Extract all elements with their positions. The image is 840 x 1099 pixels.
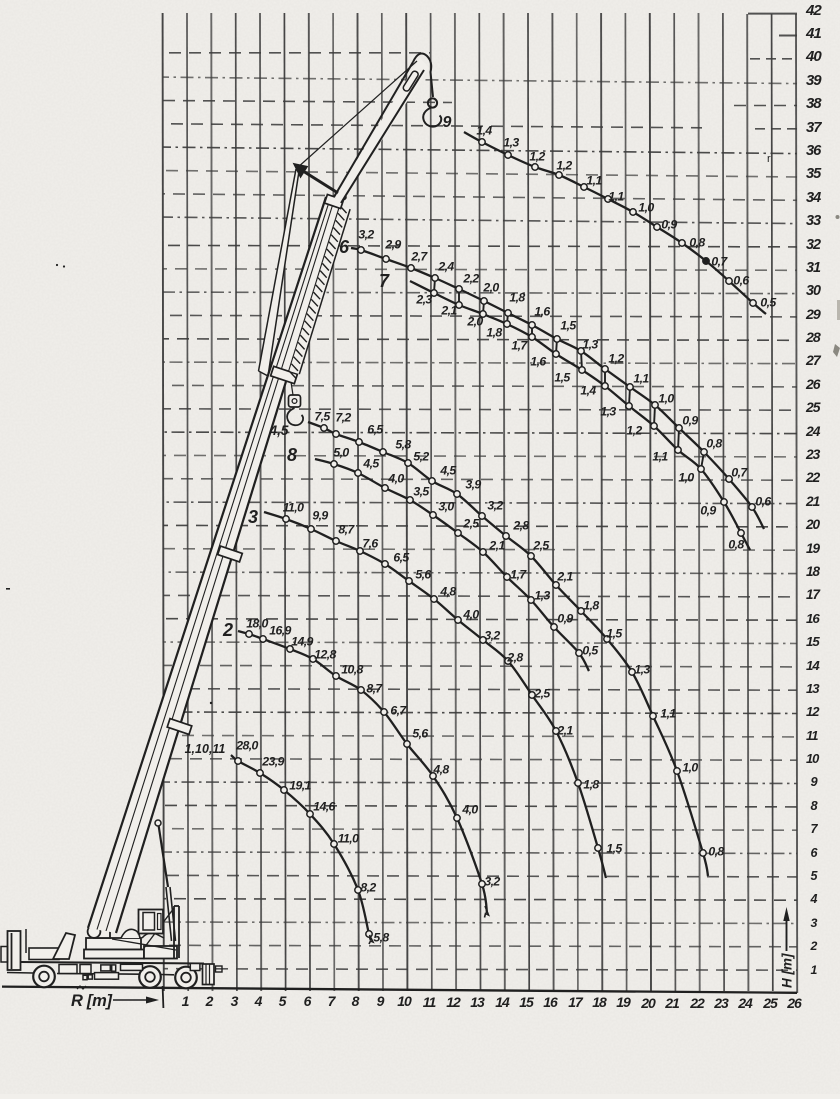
svg-text:14: 14 bbox=[495, 994, 510, 1010]
svg-text:17: 17 bbox=[806, 587, 820, 602]
svg-text:28,0: 28,0 bbox=[235, 739, 258, 753]
svg-text:1,3: 1,3 bbox=[582, 338, 598, 352]
svg-text:6,5: 6,5 bbox=[393, 551, 409, 565]
svg-text:5,6: 5,6 bbox=[412, 727, 428, 741]
svg-text:18: 18 bbox=[806, 564, 821, 579]
svg-text:1,5: 1,5 bbox=[554, 371, 570, 385]
svg-text:28: 28 bbox=[805, 330, 821, 346]
svg-text:H [m]: H [m] bbox=[780, 953, 795, 988]
svg-text:0,9: 0,9 bbox=[557, 612, 573, 626]
svg-text:0,7: 0,7 bbox=[711, 255, 728, 269]
svg-text:0,9: 0,9 bbox=[700, 504, 716, 518]
svg-text:4,5: 4,5 bbox=[362, 457, 379, 471]
svg-text:3: 3 bbox=[248, 507, 258, 527]
svg-text:7: 7 bbox=[379, 271, 390, 291]
svg-text:23,9: 23,9 bbox=[261, 755, 284, 769]
svg-text:0,6: 0,6 bbox=[755, 495, 771, 509]
svg-text:1,8: 1,8 bbox=[583, 599, 599, 613]
svg-text:2,3: 2,3 bbox=[415, 293, 432, 307]
svg-text:12: 12 bbox=[806, 704, 820, 719]
svg-text:11: 11 bbox=[423, 994, 437, 1010]
svg-text:0,6: 0,6 bbox=[733, 274, 749, 288]
svg-text:2,8: 2,8 bbox=[506, 651, 523, 665]
svg-text:1,3: 1,3 bbox=[600, 405, 616, 419]
svg-text:2,1: 2,1 bbox=[488, 539, 505, 553]
svg-text:27: 27 bbox=[805, 352, 822, 368]
svg-text:5,8: 5,8 bbox=[395, 438, 411, 452]
svg-text:5,6: 5,6 bbox=[415, 568, 431, 582]
svg-text:1,0: 1,0 bbox=[638, 201, 654, 215]
svg-text:2,1: 2,1 bbox=[556, 724, 573, 738]
svg-text:36: 36 bbox=[806, 143, 822, 159]
svg-text:2,4: 2,4 bbox=[437, 260, 454, 274]
svg-text:5: 5 bbox=[279, 993, 287, 1009]
svg-text:4,0: 4,0 bbox=[387, 472, 404, 486]
svg-text:8,2: 8,2 bbox=[360, 881, 376, 895]
svg-text:10,8: 10,8 bbox=[341, 663, 363, 677]
svg-text:13: 13 bbox=[806, 681, 820, 696]
svg-text:1,1: 1,1 bbox=[608, 190, 624, 204]
svg-text:1,5: 1,5 bbox=[560, 319, 576, 333]
svg-text:14,9: 14,9 bbox=[291, 635, 313, 649]
svg-text:12,8: 12,8 bbox=[314, 648, 336, 662]
svg-text:1,2: 1,2 bbox=[626, 424, 642, 438]
svg-text:1: 1 bbox=[182, 993, 190, 1009]
svg-text:1,2: 1,2 bbox=[556, 159, 572, 173]
svg-text:1,8: 1,8 bbox=[509, 291, 525, 305]
svg-text:5,8: 5,8 bbox=[373, 931, 389, 945]
svg-text:3,2: 3,2 bbox=[484, 629, 500, 643]
svg-text:10: 10 bbox=[806, 751, 820, 766]
svg-text:18,0: 18,0 bbox=[246, 617, 268, 631]
svg-text:2,9: 2,9 bbox=[384, 238, 401, 252]
svg-text:39: 39 bbox=[806, 73, 822, 89]
svg-text:2: 2 bbox=[810, 939, 818, 953]
svg-text:9,9: 9,9 bbox=[312, 509, 328, 523]
svg-text:2,1: 2,1 bbox=[440, 304, 457, 318]
svg-text:21: 21 bbox=[805, 494, 820, 509]
svg-text:8: 8 bbox=[287, 445, 297, 465]
svg-text:R [m]: R [m] bbox=[71, 992, 112, 1010]
svg-text:8: 8 bbox=[352, 993, 360, 1009]
svg-text:1,2: 1,2 bbox=[529, 150, 545, 164]
svg-text:3,9: 3,9 bbox=[465, 478, 481, 492]
svg-text:20: 20 bbox=[640, 995, 656, 1011]
svg-text:3,0: 3,0 bbox=[438, 500, 454, 514]
svg-text:0,5: 0,5 bbox=[582, 644, 598, 658]
svg-text:12: 12 bbox=[446, 994, 461, 1010]
svg-text:1,5: 1,5 bbox=[606, 627, 622, 641]
svg-text:6,5: 6,5 bbox=[367, 423, 383, 437]
svg-text:2,5: 2,5 bbox=[462, 517, 479, 531]
svg-text:6: 6 bbox=[304, 993, 312, 1009]
svg-text:34: 34 bbox=[806, 190, 821, 206]
svg-text:2,2: 2,2 bbox=[462, 272, 479, 286]
svg-text:0,8: 0,8 bbox=[728, 538, 744, 552]
svg-text:15: 15 bbox=[519, 994, 534, 1010]
svg-text:32: 32 bbox=[806, 237, 821, 253]
svg-text:5,0: 5,0 bbox=[333, 446, 349, 460]
svg-text:1,1: 1,1 bbox=[586, 174, 602, 188]
svg-text:1,1: 1,1 bbox=[660, 707, 676, 721]
svg-text:8,7: 8,7 bbox=[338, 523, 355, 537]
svg-text:35: 35 bbox=[806, 166, 822, 182]
svg-text:38: 38 bbox=[806, 96, 822, 112]
svg-text:26: 26 bbox=[786, 995, 802, 1011]
svg-text:3,2: 3,2 bbox=[358, 228, 374, 242]
svg-text:37: 37 bbox=[806, 120, 822, 136]
svg-text:29: 29 bbox=[805, 307, 821, 323]
svg-text:1,6: 1,6 bbox=[530, 355, 546, 369]
svg-text:3,5: 3,5 bbox=[413, 485, 429, 499]
svg-text:16: 16 bbox=[806, 611, 820, 626]
svg-text:30: 30 bbox=[806, 283, 821, 299]
svg-text:13: 13 bbox=[470, 994, 485, 1010]
svg-text:0,5: 0,5 bbox=[760, 296, 776, 310]
svg-text:1,7: 1,7 bbox=[511, 339, 528, 353]
svg-text:22: 22 bbox=[805, 470, 821, 485]
svg-text:1,3: 1,3 bbox=[634, 663, 650, 677]
svg-text:26: 26 bbox=[805, 376, 821, 392]
svg-text:1,6: 1,6 bbox=[534, 305, 550, 319]
svg-text:20: 20 bbox=[805, 517, 821, 532]
svg-text:19,1: 19,1 bbox=[289, 779, 311, 793]
svg-text:10: 10 bbox=[397, 993, 412, 1009]
svg-text:19: 19 bbox=[616, 994, 631, 1010]
svg-text:17: 17 bbox=[568, 994, 584, 1010]
svg-text:1,10,11: 1,10,11 bbox=[185, 742, 226, 756]
svg-text:18: 18 bbox=[592, 994, 607, 1010]
svg-text:19: 19 bbox=[806, 541, 821, 556]
svg-text:11: 11 bbox=[806, 728, 818, 743]
svg-text:15: 15 bbox=[806, 634, 820, 649]
svg-text:r: r bbox=[767, 153, 771, 165]
svg-text:25: 25 bbox=[762, 995, 778, 1011]
svg-text:1,5: 1,5 bbox=[606, 842, 622, 856]
svg-text:1,1: 1,1 bbox=[652, 450, 668, 464]
svg-text:22: 22 bbox=[689, 995, 705, 1011]
svg-text:1,0: 1,0 bbox=[682, 761, 698, 775]
svg-text:2: 2 bbox=[205, 993, 214, 1009]
svg-text:4,0: 4,0 bbox=[461, 803, 478, 817]
svg-text:14,6: 14,6 bbox=[313, 800, 335, 814]
svg-text:4,5: 4,5 bbox=[439, 464, 456, 478]
svg-text:3: 3 bbox=[231, 993, 239, 1009]
svg-text:24: 24 bbox=[737, 995, 753, 1011]
svg-text:1,3: 1,3 bbox=[534, 589, 550, 603]
svg-text:1,1: 1,1 bbox=[633, 372, 649, 386]
svg-text:0,8: 0,8 bbox=[708, 845, 724, 859]
svg-text:7,6: 7,6 bbox=[362, 537, 378, 551]
svg-text:0,8: 0,8 bbox=[706, 437, 722, 451]
svg-text:21: 21 bbox=[664, 995, 680, 1011]
svg-text:4,8: 4,8 bbox=[432, 763, 449, 777]
svg-text:16,9: 16,9 bbox=[269, 624, 291, 638]
svg-text:7,2: 7,2 bbox=[335, 411, 351, 425]
svg-text:8,7: 8,7 bbox=[366, 682, 383, 696]
svg-text:40: 40 bbox=[805, 48, 822, 65]
svg-text:4: 4 bbox=[254, 993, 263, 1009]
svg-text:4: 4 bbox=[810, 892, 818, 906]
svg-text:0,7: 0,7 bbox=[731, 466, 748, 480]
svg-text:2,8: 2,8 bbox=[512, 519, 529, 533]
svg-text:1,8: 1,8 bbox=[486, 326, 502, 340]
svg-text:4,0: 4,0 bbox=[462, 608, 479, 622]
svg-text:14: 14 bbox=[806, 658, 820, 673]
svg-text:1,4: 1,4 bbox=[476, 124, 492, 138]
svg-text:42: 42 bbox=[805, 2, 822, 19]
svg-text:5,2: 5,2 bbox=[413, 450, 429, 464]
svg-text:24: 24 bbox=[805, 423, 821, 439]
svg-text:0,9: 0,9 bbox=[682, 414, 698, 428]
svg-text:23: 23 bbox=[805, 447, 821, 462]
svg-text:1,7: 1,7 bbox=[510, 568, 527, 582]
svg-text:1,8: 1,8 bbox=[583, 778, 599, 792]
svg-text:9: 9 bbox=[443, 114, 452, 131]
svg-text:9: 9 bbox=[377, 993, 385, 1009]
svg-text:1,0: 1,0 bbox=[658, 392, 674, 406]
svg-text:0,8: 0,8 bbox=[689, 236, 705, 250]
svg-text:2: 2 bbox=[222, 620, 233, 640]
svg-text:25: 25 bbox=[805, 399, 821, 415]
svg-text:0,9: 0,9 bbox=[661, 218, 677, 232]
svg-text:1,4: 1,4 bbox=[580, 384, 596, 398]
svg-text:3,2: 3,2 bbox=[484, 875, 500, 889]
svg-text:2,5: 2,5 bbox=[533, 687, 550, 701]
svg-text:1,0: 1,0 bbox=[678, 471, 694, 485]
svg-text:2,5: 2,5 bbox=[532, 539, 549, 553]
svg-text:4,8: 4,8 bbox=[439, 585, 456, 599]
svg-text:7,5: 7,5 bbox=[314, 410, 330, 424]
svg-text:2,1: 2,1 bbox=[556, 570, 573, 584]
svg-text:11,0: 11,0 bbox=[283, 501, 304, 515]
svg-text:23: 23 bbox=[713, 995, 729, 1011]
svg-text:2,0: 2,0 bbox=[482, 281, 499, 295]
svg-text:1,3: 1,3 bbox=[503, 136, 519, 150]
svg-text:41: 41 bbox=[805, 25, 821, 42]
svg-text:2,7: 2,7 bbox=[410, 250, 428, 264]
svg-text:2,0: 2,0 bbox=[466, 315, 483, 329]
svg-text:3,2: 3,2 bbox=[487, 499, 503, 513]
svg-text:11,0: 11,0 bbox=[338, 832, 359, 846]
svg-text:6,7: 6,7 bbox=[390, 704, 407, 718]
svg-text:16: 16 bbox=[543, 994, 558, 1010]
svg-text:1,2: 1,2 bbox=[608, 352, 624, 366]
svg-text:31: 31 bbox=[806, 260, 821, 276]
svg-text:33: 33 bbox=[806, 213, 821, 229]
